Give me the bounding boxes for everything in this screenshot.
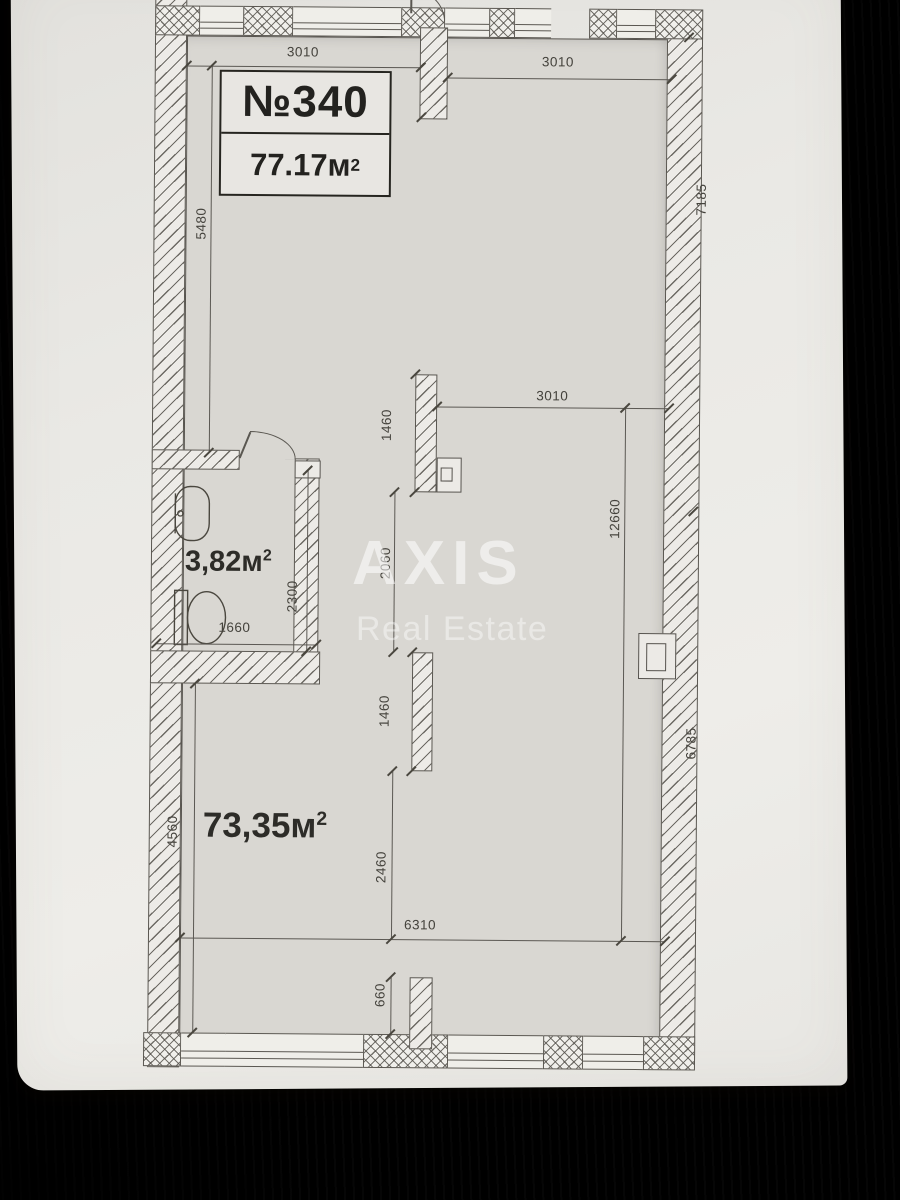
pilaster-duct-inner	[441, 467, 453, 481]
photo-scene: №340 77.17м2 3,82м2 73,35м2	[0, 0, 900, 1200]
wall-block	[543, 1035, 583, 1069]
wall-block	[643, 1036, 695, 1070]
bathroom-top-wall	[152, 449, 240, 470]
window-segment	[225, 1033, 363, 1068]
wall-block	[589, 9, 617, 39]
window-segment	[617, 9, 655, 39]
dim-top-right: 3010	[542, 54, 574, 69]
bottom-pier	[409, 977, 433, 1049]
window-segment	[448, 1035, 543, 1070]
window-segment	[293, 6, 401, 37]
main-area-sup: 2	[316, 809, 327, 830]
lower-pilaster	[411, 652, 433, 771]
wall-block	[143, 1032, 181, 1066]
dim-top-left: 3010	[287, 44, 319, 59]
wall-block	[155, 5, 200, 35]
wall-block	[363, 1034, 448, 1069]
dim-bottom-width: 6310	[404, 917, 436, 932]
sink-icon	[173, 483, 213, 543]
dim-bathroom-width: 1660	[218, 620, 250, 635]
dim-hall-height: 12660	[607, 499, 622, 539]
unit-area-label: 77.17м2	[221, 134, 389, 197]
wall-block	[655, 9, 703, 39]
entrance-door-swing-arc-icon	[411, 0, 445, 22]
wall-block	[243, 6, 293, 36]
window-segment	[583, 1036, 643, 1070]
wall-shaft-inner	[646, 643, 666, 671]
dim-pilaster-lower: 1460	[377, 695, 392, 727]
main-area-value: 73,35м	[203, 806, 317, 846]
bathroom-area-sup: 2	[263, 547, 272, 564]
dim-bathroom-height: 2300	[285, 580, 300, 612]
window-segment	[445, 7, 489, 37]
upper-pilaster	[414, 374, 437, 492]
unit-number-label: №340	[221, 72, 389, 135]
toilet-icon	[172, 585, 229, 649]
bathroom-area-value: 3,82м	[185, 545, 263, 578]
main-area-label: 73,35м2	[203, 806, 328, 847]
wall-block	[489, 8, 515, 38]
window-segment	[515, 8, 551, 38]
dim-right-upper: 7185	[694, 183, 709, 215]
dim-left-lower: 4560	[165, 815, 180, 847]
watermark-subtitle: Real Estate	[356, 610, 548, 649]
dim-bottom-pier: 660	[372, 983, 387, 1007]
top-pier	[419, 27, 448, 119]
bathroom-area-label: 3,82м2	[185, 545, 272, 579]
dim-mid-width: 3010	[536, 388, 568, 403]
watermark-brand: AXIS	[352, 528, 525, 599]
unit-area-value: 77.17м	[250, 147, 351, 184]
dim-pilaster-upper: 1460	[379, 409, 394, 441]
unit-info-box: №340 77.17м2	[219, 70, 392, 197]
bathroom-bottom-wall	[150, 650, 320, 684]
dim-below-pilaster: 2460	[373, 851, 388, 883]
unit-area-sup: 2	[350, 156, 360, 176]
window-segment	[200, 6, 243, 36]
dim-right-lower: 6785	[683, 727, 698, 759]
dim-left-upper: 5480	[193, 208, 208, 240]
